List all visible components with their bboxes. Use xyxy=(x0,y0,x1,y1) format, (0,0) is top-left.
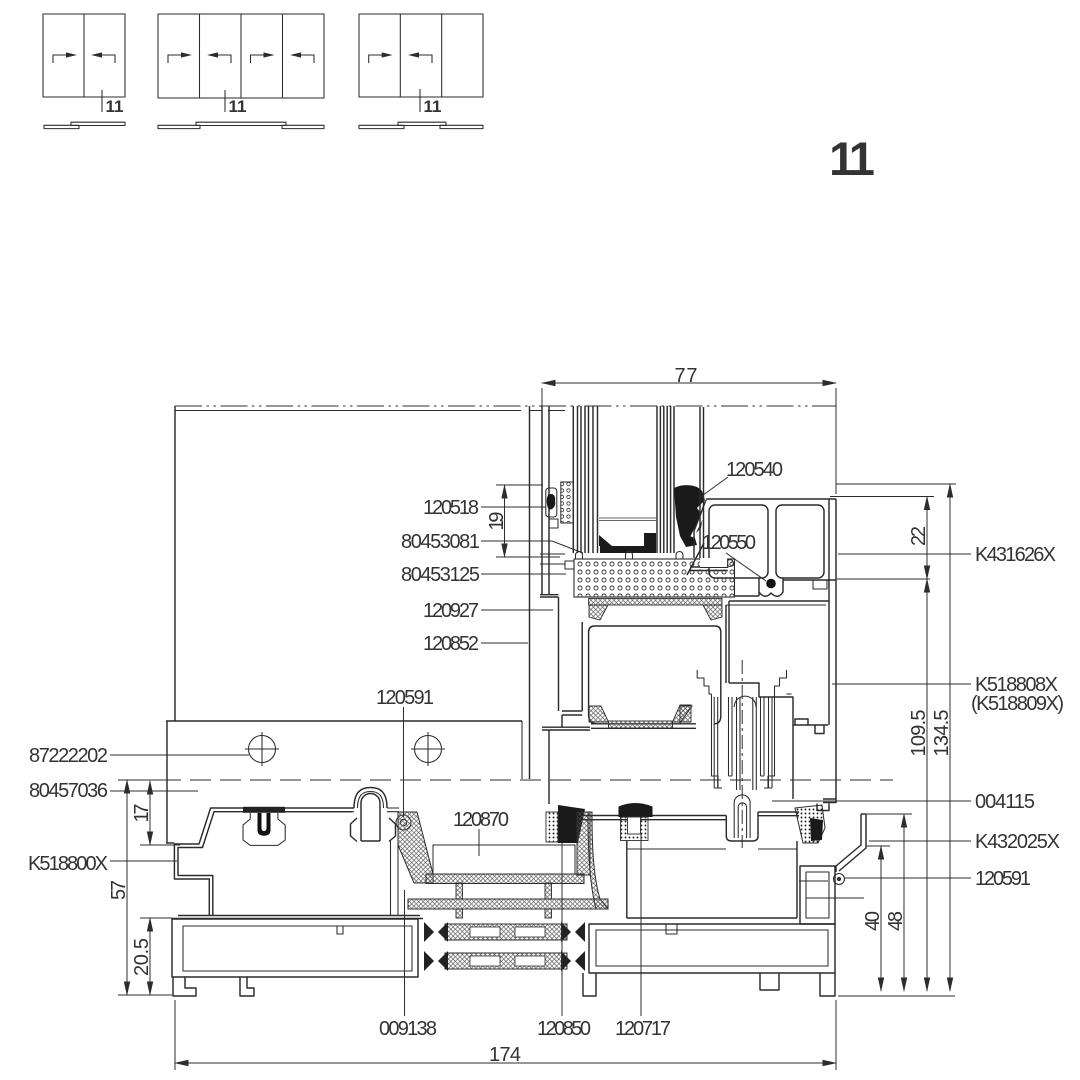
svg-text:120870: 120870 xyxy=(453,809,509,831)
svg-text:80453081: 80453081 xyxy=(401,531,480,553)
svg-text:80457036: 80457036 xyxy=(29,780,108,802)
svg-text:120927: 120927 xyxy=(423,600,479,622)
svg-text:109.5: 109.5 xyxy=(908,710,930,757)
svg-text:120852: 120852 xyxy=(423,633,479,655)
svg-text:120850: 120850 xyxy=(537,1018,591,1040)
svg-text:87222202: 87222202 xyxy=(29,745,108,767)
svg-text:80453125: 80453125 xyxy=(401,564,480,586)
svg-text:120591: 120591 xyxy=(975,868,1031,890)
svg-text:40: 40 xyxy=(862,911,884,931)
svg-text:009138: 009138 xyxy=(379,1018,437,1040)
svg-text:11: 11 xyxy=(229,97,247,116)
svg-text:77: 77 xyxy=(675,365,698,387)
svg-text:17: 17 xyxy=(131,804,153,823)
svg-text:120518: 120518 xyxy=(423,497,479,519)
svg-text:120540: 120540 xyxy=(726,459,783,481)
svg-text:11: 11 xyxy=(424,97,442,116)
svg-text:20.5: 20.5 xyxy=(131,938,153,976)
svg-text:22: 22 xyxy=(908,526,930,546)
svg-text:19: 19 xyxy=(486,512,508,531)
svg-text:120591: 120591 xyxy=(376,687,434,709)
svg-text:120717: 120717 xyxy=(615,1018,671,1040)
svg-text:K518800X: K518800X xyxy=(28,853,108,875)
svg-text:004115: 004115 xyxy=(975,791,1035,813)
svg-text:48: 48 xyxy=(885,911,907,931)
svg-text:K432025X: K432025X xyxy=(975,831,1060,853)
svg-text:174: 174 xyxy=(489,1044,521,1066)
svg-text:(K518809X): (K518809X) xyxy=(971,693,1064,715)
svg-text:120550: 120550 xyxy=(702,532,756,554)
svg-text:57: 57 xyxy=(108,880,130,900)
svg-text:K431626X: K431626X xyxy=(975,544,1056,566)
svg-text:134.5: 134.5 xyxy=(931,710,953,757)
svg-text:11: 11 xyxy=(106,97,124,116)
svg-text:11: 11 xyxy=(829,132,874,185)
